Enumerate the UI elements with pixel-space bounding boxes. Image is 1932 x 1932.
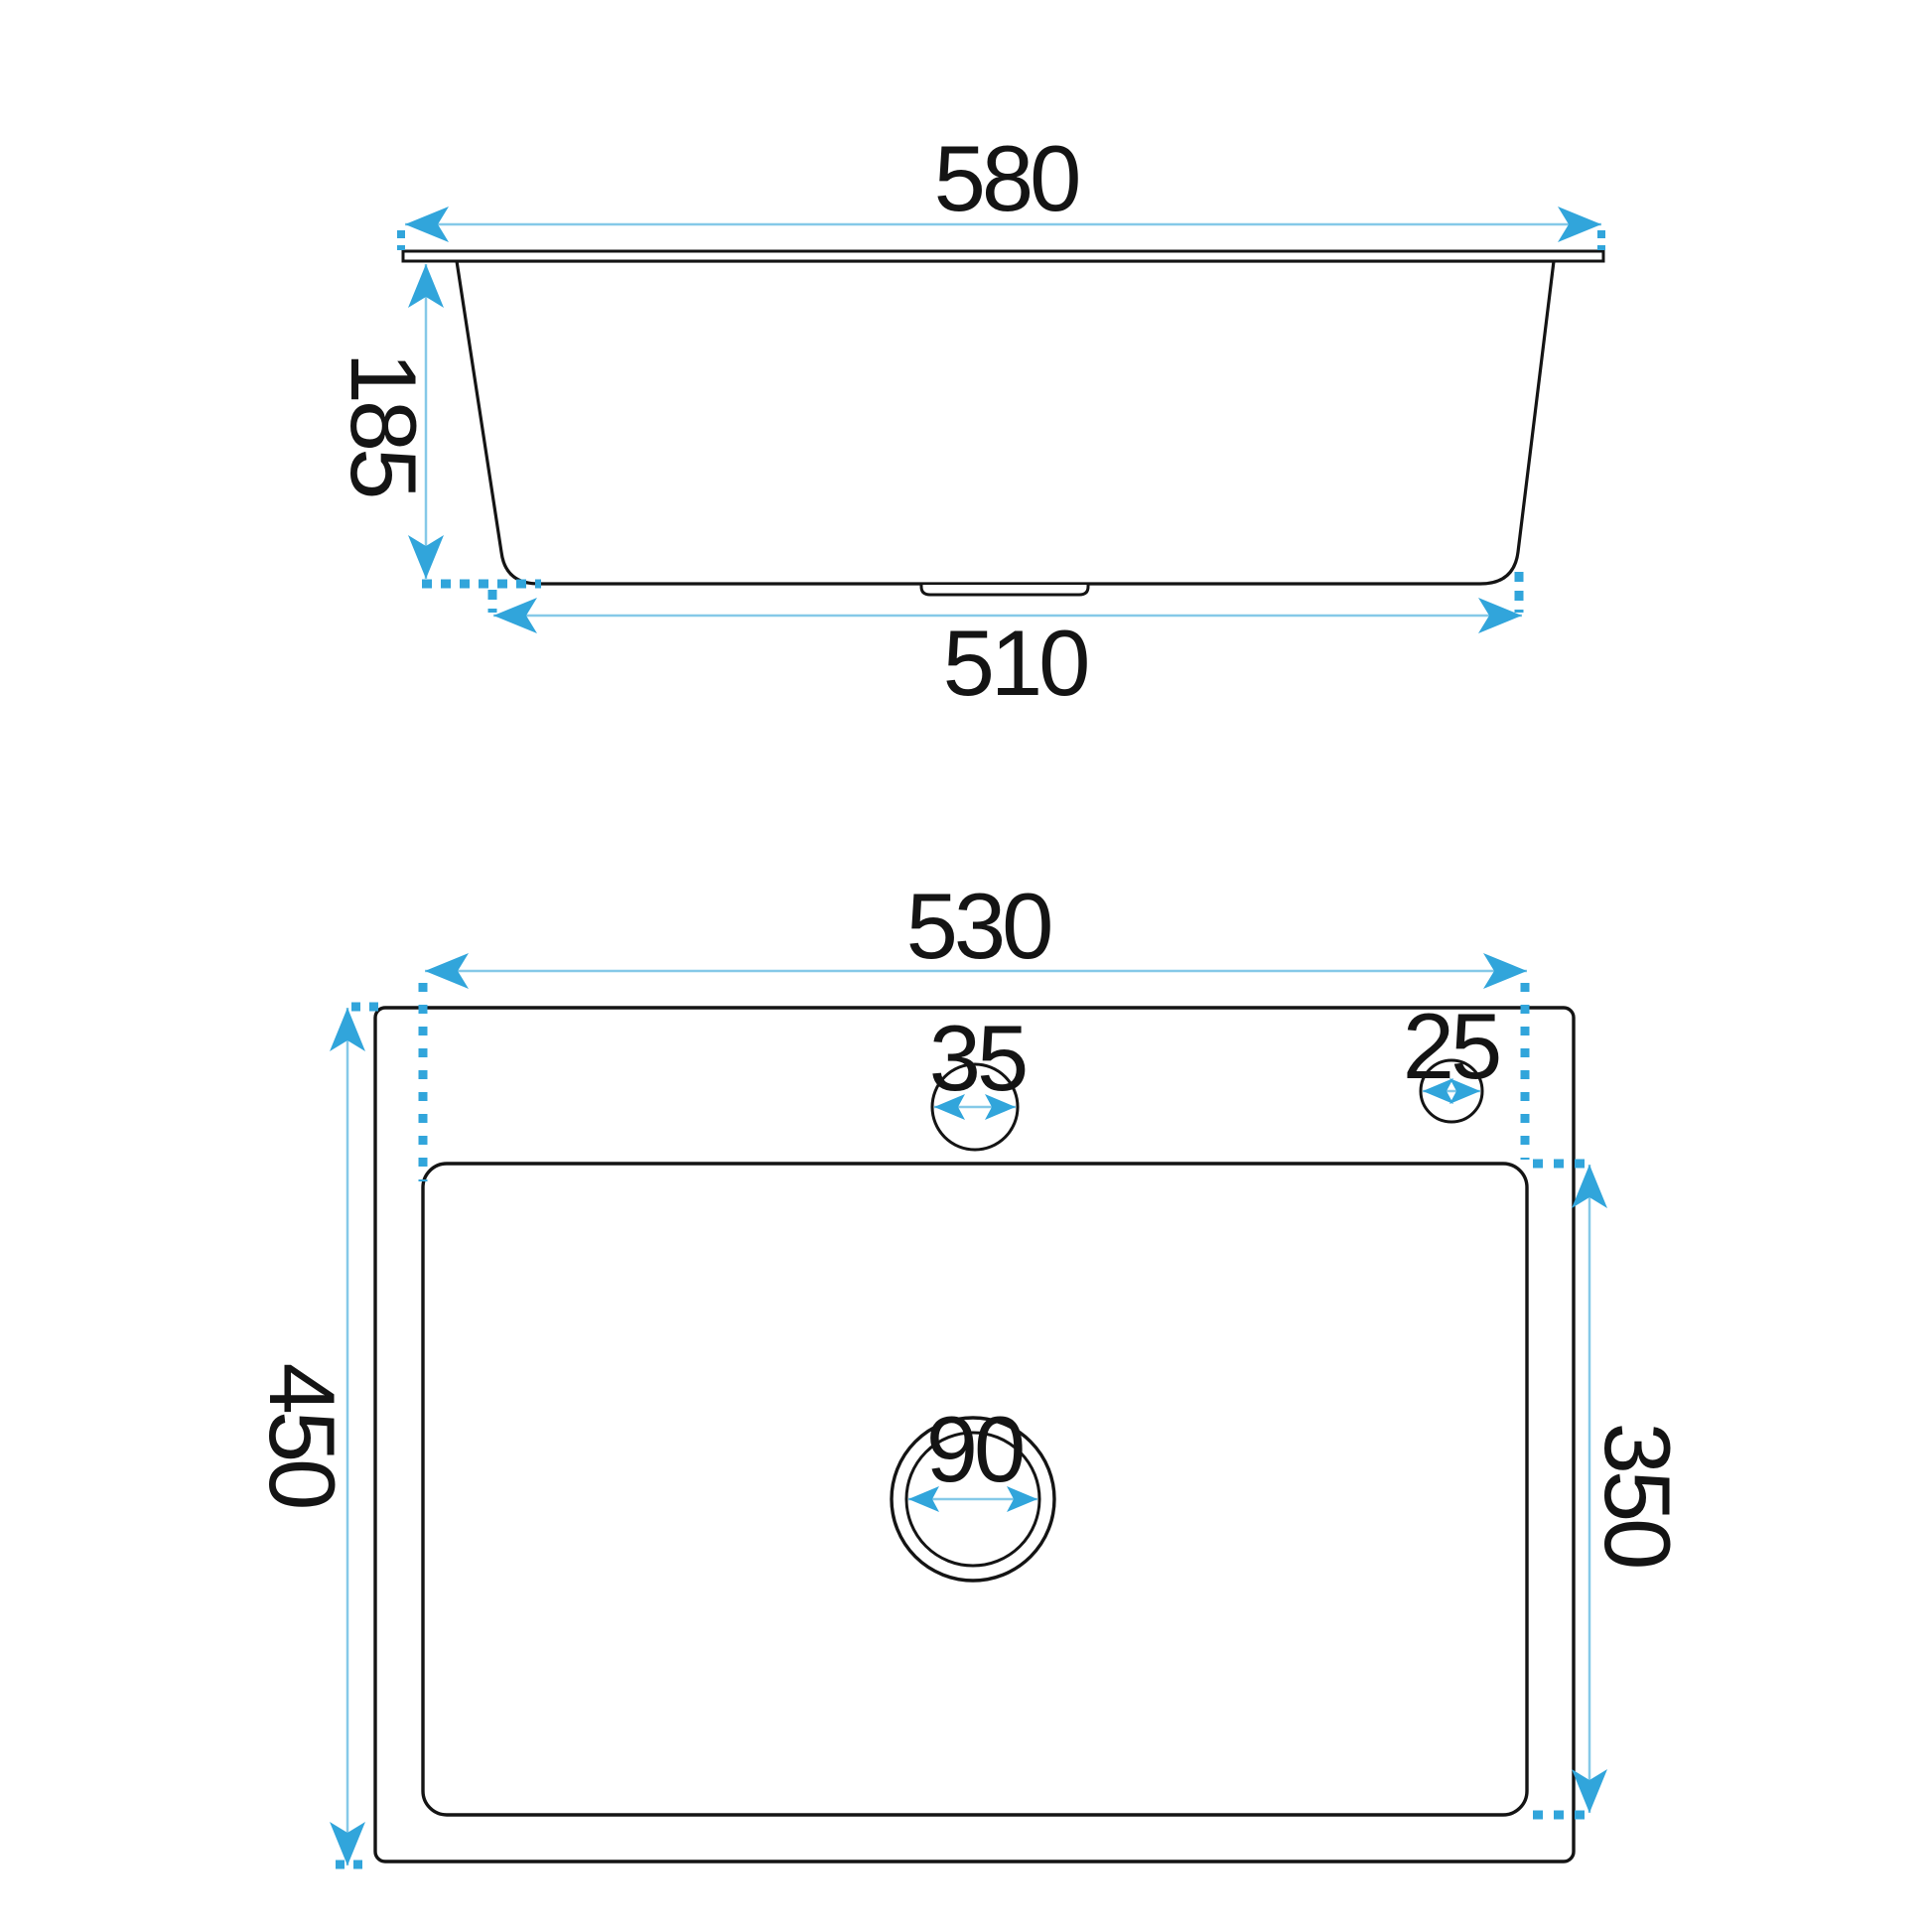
dim-label-basin-depth: 350 [1586, 1423, 1690, 1568]
side-view: 580 185 510 [332, 126, 1603, 715]
drawing-svg: 580 185 510 530 35 25 90 [0, 0, 1932, 1932]
sink-body-outline [457, 261, 1554, 584]
dim-label-faucet-hole: 35 [929, 1006, 1026, 1110]
sink-technical-drawing: 580 185 510 530 35 25 90 [0, 0, 1932, 1932]
plan-view: 530 35 25 90 450 350 [250, 874, 1690, 1865]
dim-label-overall-depth: 450 [250, 1363, 354, 1508]
drain-boss-outline [921, 585, 1088, 595]
dim-label-overall-width: 580 [934, 126, 1079, 230]
sink-rim-outline [403, 251, 1603, 261]
dim-label-drain: 90 [926, 1397, 1023, 1501]
dim-label-bottom-width: 510 [943, 611, 1088, 715]
dim-label-accessory-hole: 25 [1403, 994, 1499, 1098]
dim-label-basin-width: 530 [906, 874, 1051, 978]
dim-label-height: 185 [332, 352, 436, 497]
